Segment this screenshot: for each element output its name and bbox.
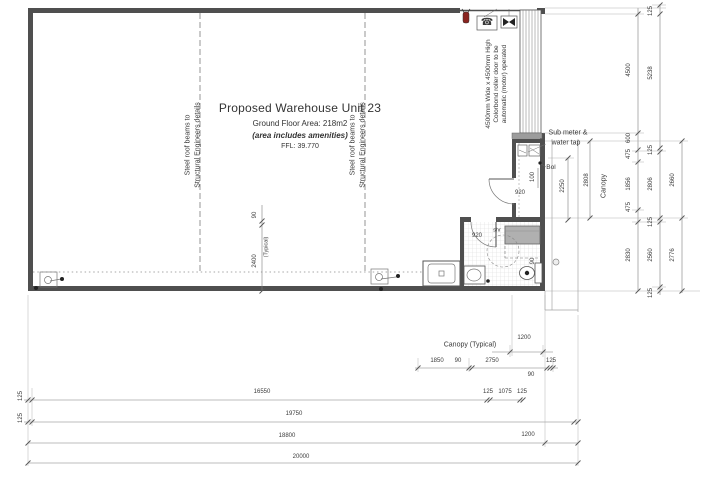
dim-label: 1850	[430, 358, 443, 364]
dim-label: 5238	[648, 66, 654, 79]
dim-label: 20000	[293, 454, 310, 460]
dimension-lines	[24, 4, 682, 463]
dim-label: 125	[483, 389, 493, 395]
dim-label: 125	[18, 413, 24, 423]
shower-tray	[505, 226, 540, 244]
dim-label: 475	[626, 202, 632, 212]
dim-label: 600	[626, 133, 632, 143]
dim-label: 19750	[286, 411, 303, 417]
beam-note: Steel roof beams to	[350, 115, 357, 176]
dim-label: 125	[648, 288, 654, 298]
store-door	[489, 179, 514, 204]
dim-label: 2776	[670, 248, 676, 261]
dim-label: 125	[18, 391, 24, 401]
floor-plan: Proposed Warehouse Unit 23 Ground Floor …	[0, 0, 712, 480]
dim-label: 475	[626, 149, 632, 159]
bollard-icon	[553, 259, 559, 265]
dim-label: 100	[530, 172, 536, 182]
door-width-label: 920	[515, 190, 525, 196]
dim-label: 1075	[498, 389, 511, 395]
submeter-label: water tap	[552, 140, 581, 147]
dim-label: 2400	[252, 254, 258, 267]
canopy-bottom-label: Canopy (Typical)	[444, 342, 497, 349]
dim-label: 90	[455, 358, 462, 364]
dim-label: 90	[252, 212, 258, 219]
extension-lines	[28, 5, 700, 466]
roller-door-note: 4500mm Wide x 4500mm High	[486, 39, 493, 128]
dim-label: 1856	[626, 177, 632, 190]
meter-box-icon	[518, 145, 527, 156]
submeter-label: Sub meter &	[549, 130, 588, 137]
shower-label: shr	[493, 228, 501, 234]
bollard-label: Bol	[546, 165, 555, 172]
dim-label: 125	[648, 217, 654, 227]
dim-label: 1200	[521, 432, 534, 438]
plan-title: Proposed Warehouse Unit 23	[160, 101, 440, 115]
phone-icon-glyph: ☎	[481, 18, 493, 28]
dim-label: 16550	[254, 389, 271, 395]
dim-label: 2250	[560, 179, 566, 192]
beam-note: Steel roof beams to	[185, 115, 192, 176]
dim-label: 125	[648, 6, 654, 16]
dim-label: 2830	[626, 248, 632, 261]
dim-label: 125	[648, 145, 654, 155]
floor-area-text: Ground Floor Area: 218m2	[160, 119, 440, 128]
area-note: (area includes amenities)	[160, 131, 440, 140]
dim-label: 18800	[279, 433, 296, 439]
dim-label: 125	[517, 389, 527, 395]
roller-door	[512, 10, 542, 139]
ffl-text: FFL: 39.770	[160, 143, 440, 150]
laundry-tub-icon	[423, 261, 460, 286]
plan-title-block: Proposed Warehouse Unit 23 Ground Floor …	[160, 101, 440, 150]
dim-label: 2560	[648, 248, 654, 261]
dim-label: 2808	[584, 173, 590, 186]
roller-door-motor-icon	[501, 16, 517, 28]
roller-door-note: automatic (motor) operated	[502, 45, 509, 123]
floorplan-linework	[0, 0, 712, 480]
water-tap-icon	[529, 145, 540, 156]
beam-note: Structural Engineers details	[195, 102, 202, 188]
dim-label: 125	[546, 358, 556, 364]
dim-label: 2806	[648, 177, 654, 190]
dim-label: 90	[528, 372, 535, 378]
dimension-ticks	[26, 3, 685, 466]
dim-label: 2750	[485, 358, 498, 364]
dim-label: 1200	[517, 335, 530, 341]
dim-label: 4500	[626, 63, 632, 76]
dim-label: 90	[530, 258, 536, 265]
roller-door-note: Colorbond roller door to be	[494, 45, 501, 122]
beam-note: Structural Engineers details	[360, 102, 367, 188]
bathroom	[464, 222, 542, 286]
door-threshold	[512, 133, 542, 139]
canopy-side-label: Canopy	[601, 174, 608, 198]
door-width-label: 920	[472, 233, 482, 239]
dim-label: (Typical)	[264, 237, 270, 258]
dim-label: 2660	[670, 173, 676, 186]
